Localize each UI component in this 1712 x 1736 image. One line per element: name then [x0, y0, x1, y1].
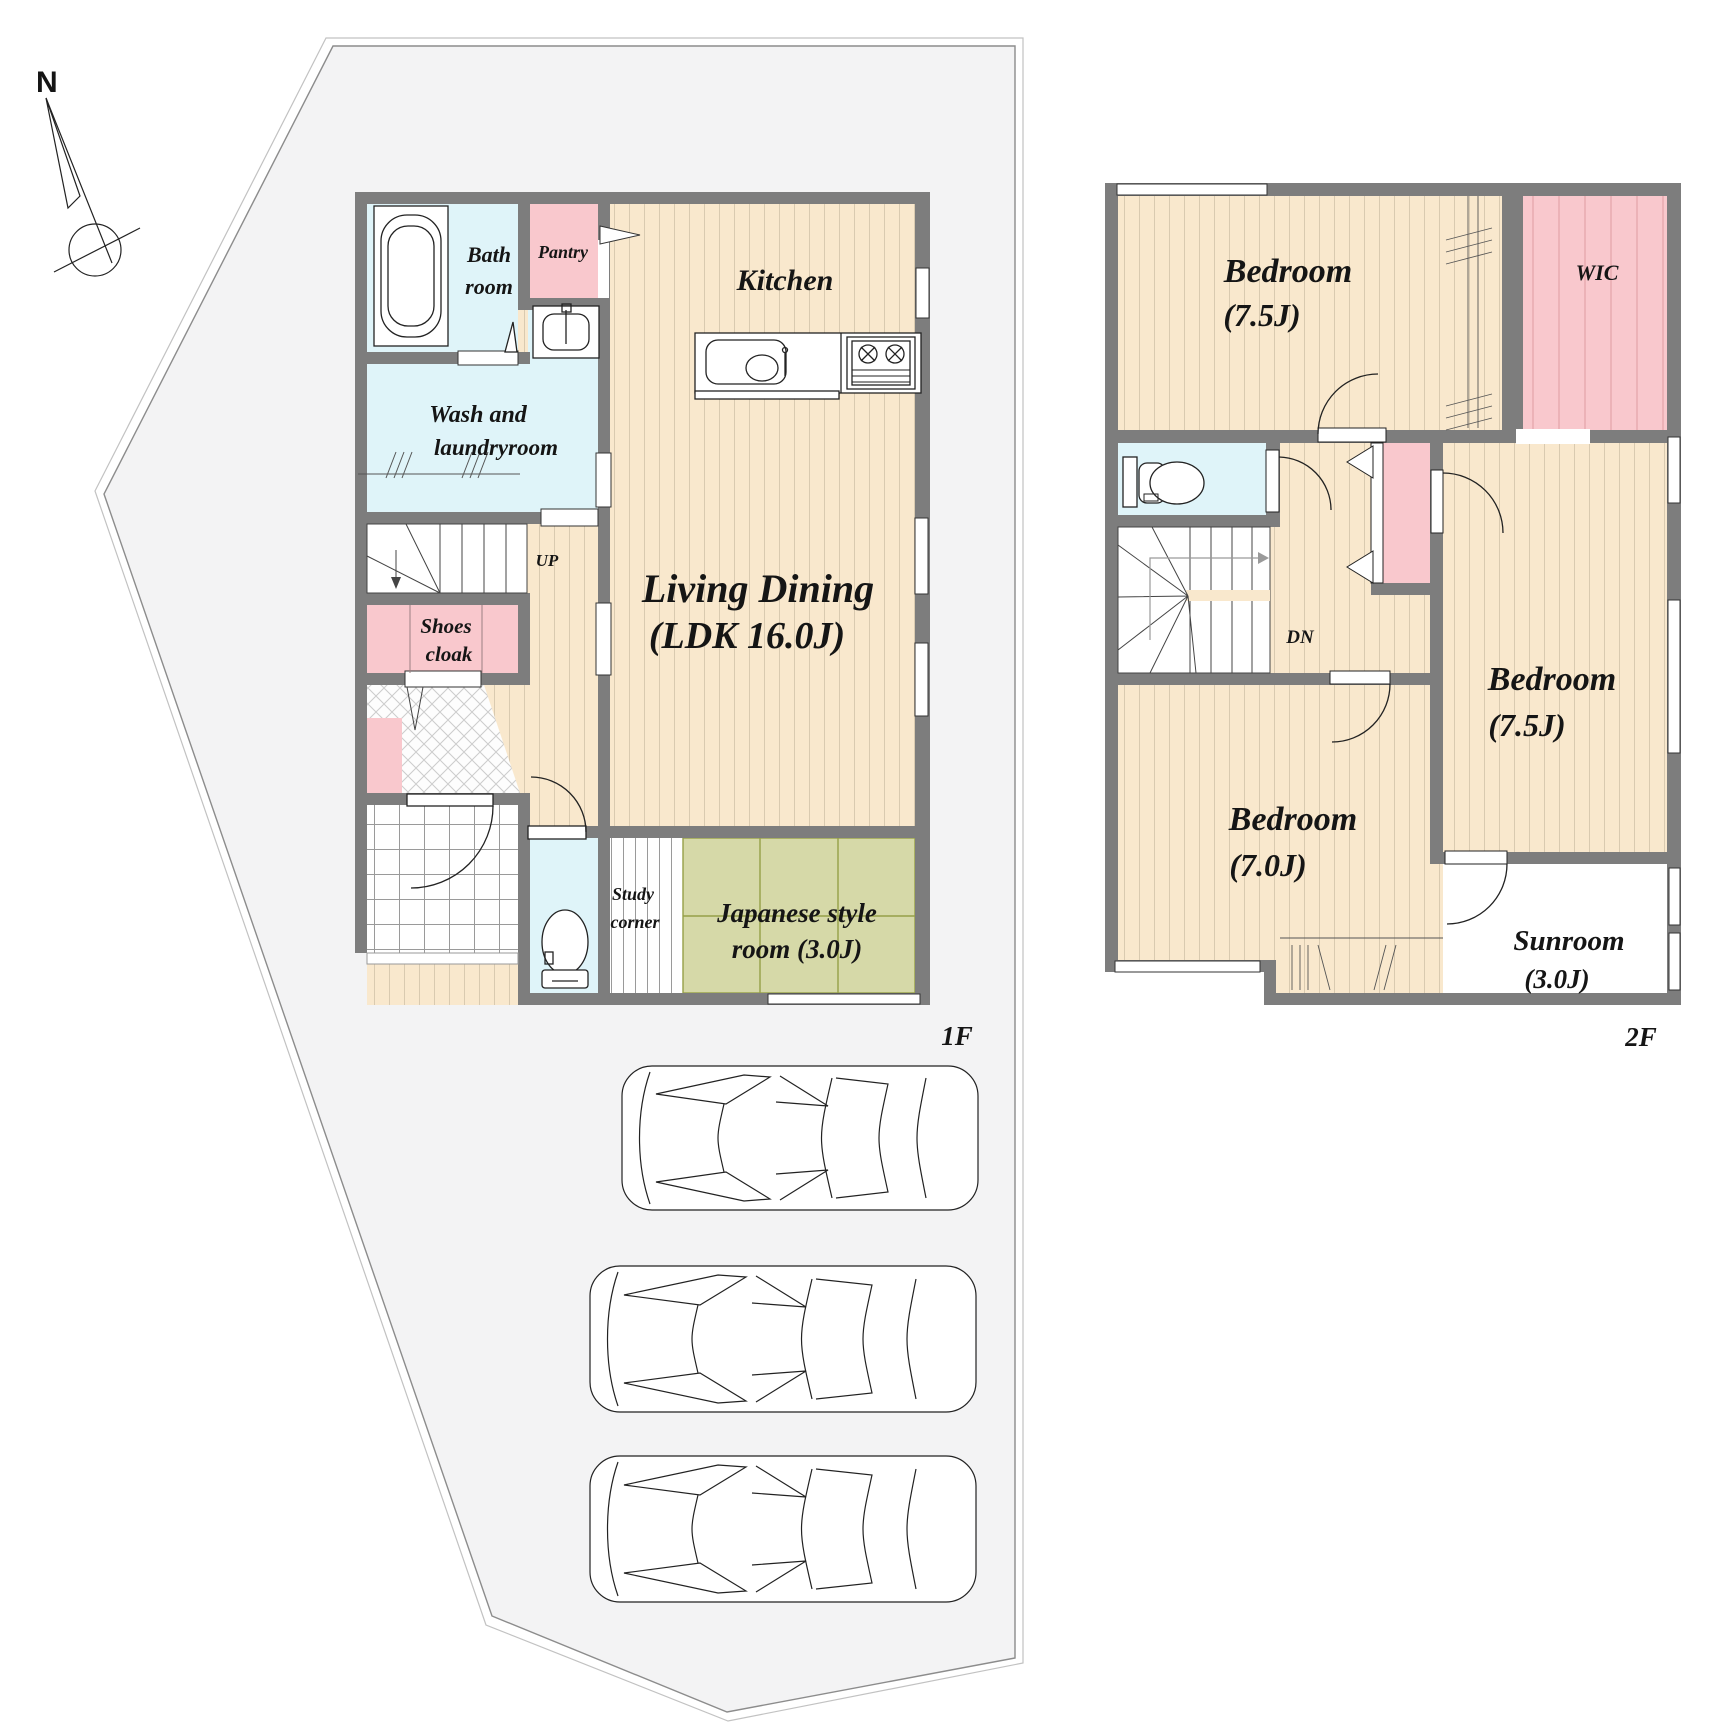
window-east-bedroom2-2 [1668, 600, 1680, 753]
shoes-cloak-sliding-door [405, 671, 481, 687]
label-shoes-line2: cloak [426, 642, 473, 666]
label-bath-line2: room [465, 274, 513, 299]
stairs1-floor [367, 524, 527, 593]
washroom-door-opening [541, 509, 598, 526]
compass-cross-line [54, 228, 140, 272]
compass-circle [69, 224, 121, 276]
label-study-line1: Study [612, 884, 655, 904]
wic-floor [1523, 196, 1667, 430]
window-east-living-2 [915, 643, 928, 716]
label-bedroom-nw-line1: Bedroom [1223, 253, 1352, 290]
label-bedroom-e-line1: Bedroom [1487, 661, 1616, 698]
label-sunroom-line2: (3.0J) [1524, 964, 1589, 994]
parking [590, 1066, 978, 1602]
label-floor2: 2F [1624, 1022, 1657, 1052]
car-icon [590, 1456, 976, 1602]
label-dn: DN [1285, 627, 1315, 648]
notch-exterior [1105, 972, 1264, 1005]
hall-ldk-opening-2 [596, 603, 611, 675]
closet2-floor [1383, 443, 1430, 583]
kitchen-counter [695, 333, 921, 399]
label-sunroom-line1: Sunroom [1513, 925, 1624, 957]
stove-icon [847, 337, 915, 389]
wic-opening [1516, 429, 1590, 444]
label-study-line2: corner [611, 912, 661, 932]
pantry-door-opening [598, 240, 609, 298]
compass-needle-line [46, 98, 112, 263]
window-north-bedroom1 [1117, 184, 1267, 195]
label-japanese-line1: Japanese style [716, 898, 877, 928]
label-japanese-line2: room (3.0J) [732, 934, 863, 964]
window-south-japanese [768, 994, 920, 1004]
label-up: UP [536, 551, 559, 570]
label-living-line2: (LDK 16.0J) [649, 615, 845, 657]
car-icon [590, 1266, 976, 1412]
window-east-bedroom2-1 [1668, 437, 1680, 503]
label-floor1: 1F [941, 1021, 973, 1051]
label-shoes-line1: Shoes [420, 614, 471, 638]
compass: N [36, 66, 140, 276]
floorplan-canvas: N [0, 0, 1712, 1736]
entrance-closet-floor [367, 718, 402, 793]
window-east-living-1 [915, 518, 928, 594]
floor2-plan: Bedroom (7.5J) WIC DN Bedroom (7.5J) Bed… [1105, 183, 1681, 1052]
compass-needle-icon [46, 98, 80, 208]
label-wash-line1: Wash and [429, 402, 528, 428]
label-living-line1: Living Dining [641, 566, 874, 611]
label-kitchen: Kitchen [736, 264, 834, 297]
label-bedroom-sw-line1: Bedroom [1228, 801, 1357, 838]
window-east-sunroom-1 [1669, 868, 1680, 925]
label-wic: WIC [1576, 260, 1619, 285]
label-bedroom-e-line2: (7.5J) [1488, 707, 1565, 743]
hall-ldk-opening-1 [596, 453, 611, 507]
label-pantry: Pantry [537, 242, 589, 262]
porch-step [367, 953, 518, 964]
label-wash-line2: laundryroom [434, 435, 558, 460]
toilet-icon [542, 910, 588, 988]
washbasin-icon [533, 304, 599, 358]
bathtub-icon [374, 206, 448, 346]
floor1-plan: Bath room Pantry Kitchen Wash and laundr… [355, 192, 973, 1051]
compass-north-label: N [36, 66, 58, 99]
window-south-bedroom3 [1115, 961, 1260, 972]
bath-entry-shelf [458, 351, 518, 365]
label-bedroom-sw-line2: (7.0J) [1229, 847, 1306, 883]
label-bedroom-nw-line2: (7.5J) [1223, 297, 1300, 333]
car-icon [622, 1066, 978, 1210]
window-east-sunroom-2 [1669, 933, 1680, 990]
window-east-kitchen [916, 268, 929, 318]
label-bath-line1: Bath [466, 242, 511, 267]
porch-floor [367, 805, 518, 953]
